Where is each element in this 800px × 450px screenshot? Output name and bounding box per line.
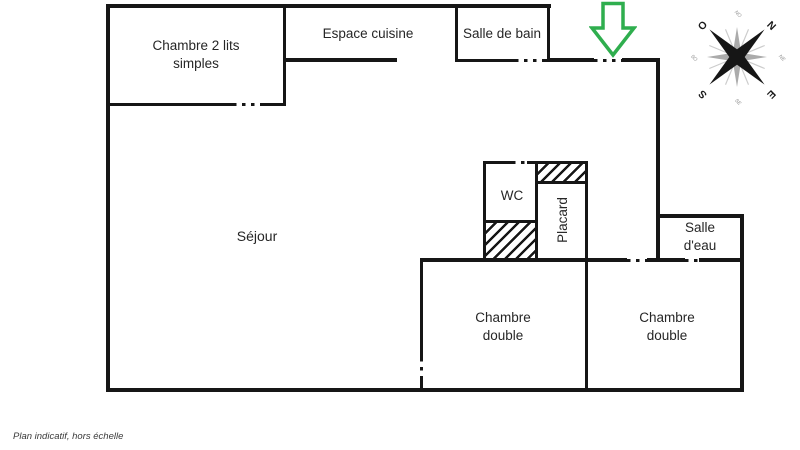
room-label-bathroom: Salle de bain <box>457 25 547 43</box>
door-bedroom-right <box>627 259 647 262</box>
door-wc <box>512 161 527 164</box>
wall-wc-top-left <box>483 161 512 164</box>
wall-twin-bottom-right <box>260 103 286 106</box>
wall-entry-vertical <box>656 60 660 262</box>
compass-rose-icon: N E S O NO NE SE SO <box>687 6 787 108</box>
entrance-arrow-shape <box>592 4 634 56</box>
wall-entry-left <box>550 58 594 62</box>
wall-outer-right <box>740 214 744 392</box>
compass-label-west: O <box>696 19 710 33</box>
wall-outer-top <box>106 4 551 8</box>
wall-kitchen <box>283 58 397 62</box>
compass-label-sw: SO <box>689 54 698 63</box>
room-label-wc: WC <box>488 187 536 205</box>
wall-shower-top <box>656 214 744 218</box>
door-bedroom-left <box>420 358 423 376</box>
room-label-double-bedroom-left: Chambre double <box>455 309 551 345</box>
hatch-box-below-wc <box>486 223 535 258</box>
wall-bedrooms-top-1 <box>420 258 627 262</box>
room-label-shower-room: Salle d'eau <box>670 219 730 255</box>
wall-bath-bottom-right <box>542 59 551 62</box>
door-twin-bedroom <box>233 103 260 106</box>
floor-plan: Chambre 2 lits simples Espace cuisine Sa… <box>0 0 800 450</box>
room-label-double-bedroom-right: Chambre double <box>619 309 715 345</box>
entrance-arrow-icon <box>589 1 637 58</box>
compass-label-ne: NE <box>777 54 787 64</box>
wall-bath-right <box>547 4 550 62</box>
compass-label-nw: NO <box>733 10 743 20</box>
room-label-twin-bedroom: Chambre 2 lits simples <box>131 37 261 73</box>
compass-label-south: S <box>696 87 709 100</box>
room-label-closet: Placard <box>554 180 570 260</box>
wall-twin-right <box>283 4 286 106</box>
door-bathroom <box>515 59 542 62</box>
wall-closet-right <box>585 161 588 392</box>
wall-twin-bottom-left <box>106 103 233 106</box>
wall-bedrooms-top-3 <box>699 258 744 262</box>
room-label-living-room: Séjour <box>209 227 305 245</box>
hatch-box-above-closet <box>538 164 585 181</box>
wall-bedroom-left-1 <box>420 258 423 358</box>
footer-note: Plan indicatif, hors échelle <box>13 431 123 442</box>
wall-bath-bottom-left <box>455 59 515 62</box>
compass-label-se: SE <box>733 98 742 107</box>
wall-bedroom-left-2 <box>420 376 423 392</box>
door-shower-room <box>685 259 699 262</box>
compass-label-east: E <box>764 87 777 100</box>
wall-outer-left <box>106 4 110 392</box>
wall-bedrooms-top-2 <box>647 258 685 262</box>
compass-label-north: N <box>764 19 778 33</box>
wall-entry-right <box>622 58 660 62</box>
wall-outer-bottom <box>106 388 744 392</box>
room-label-kitchen: Espace cuisine <box>298 25 438 43</box>
door-entrance <box>594 59 622 62</box>
